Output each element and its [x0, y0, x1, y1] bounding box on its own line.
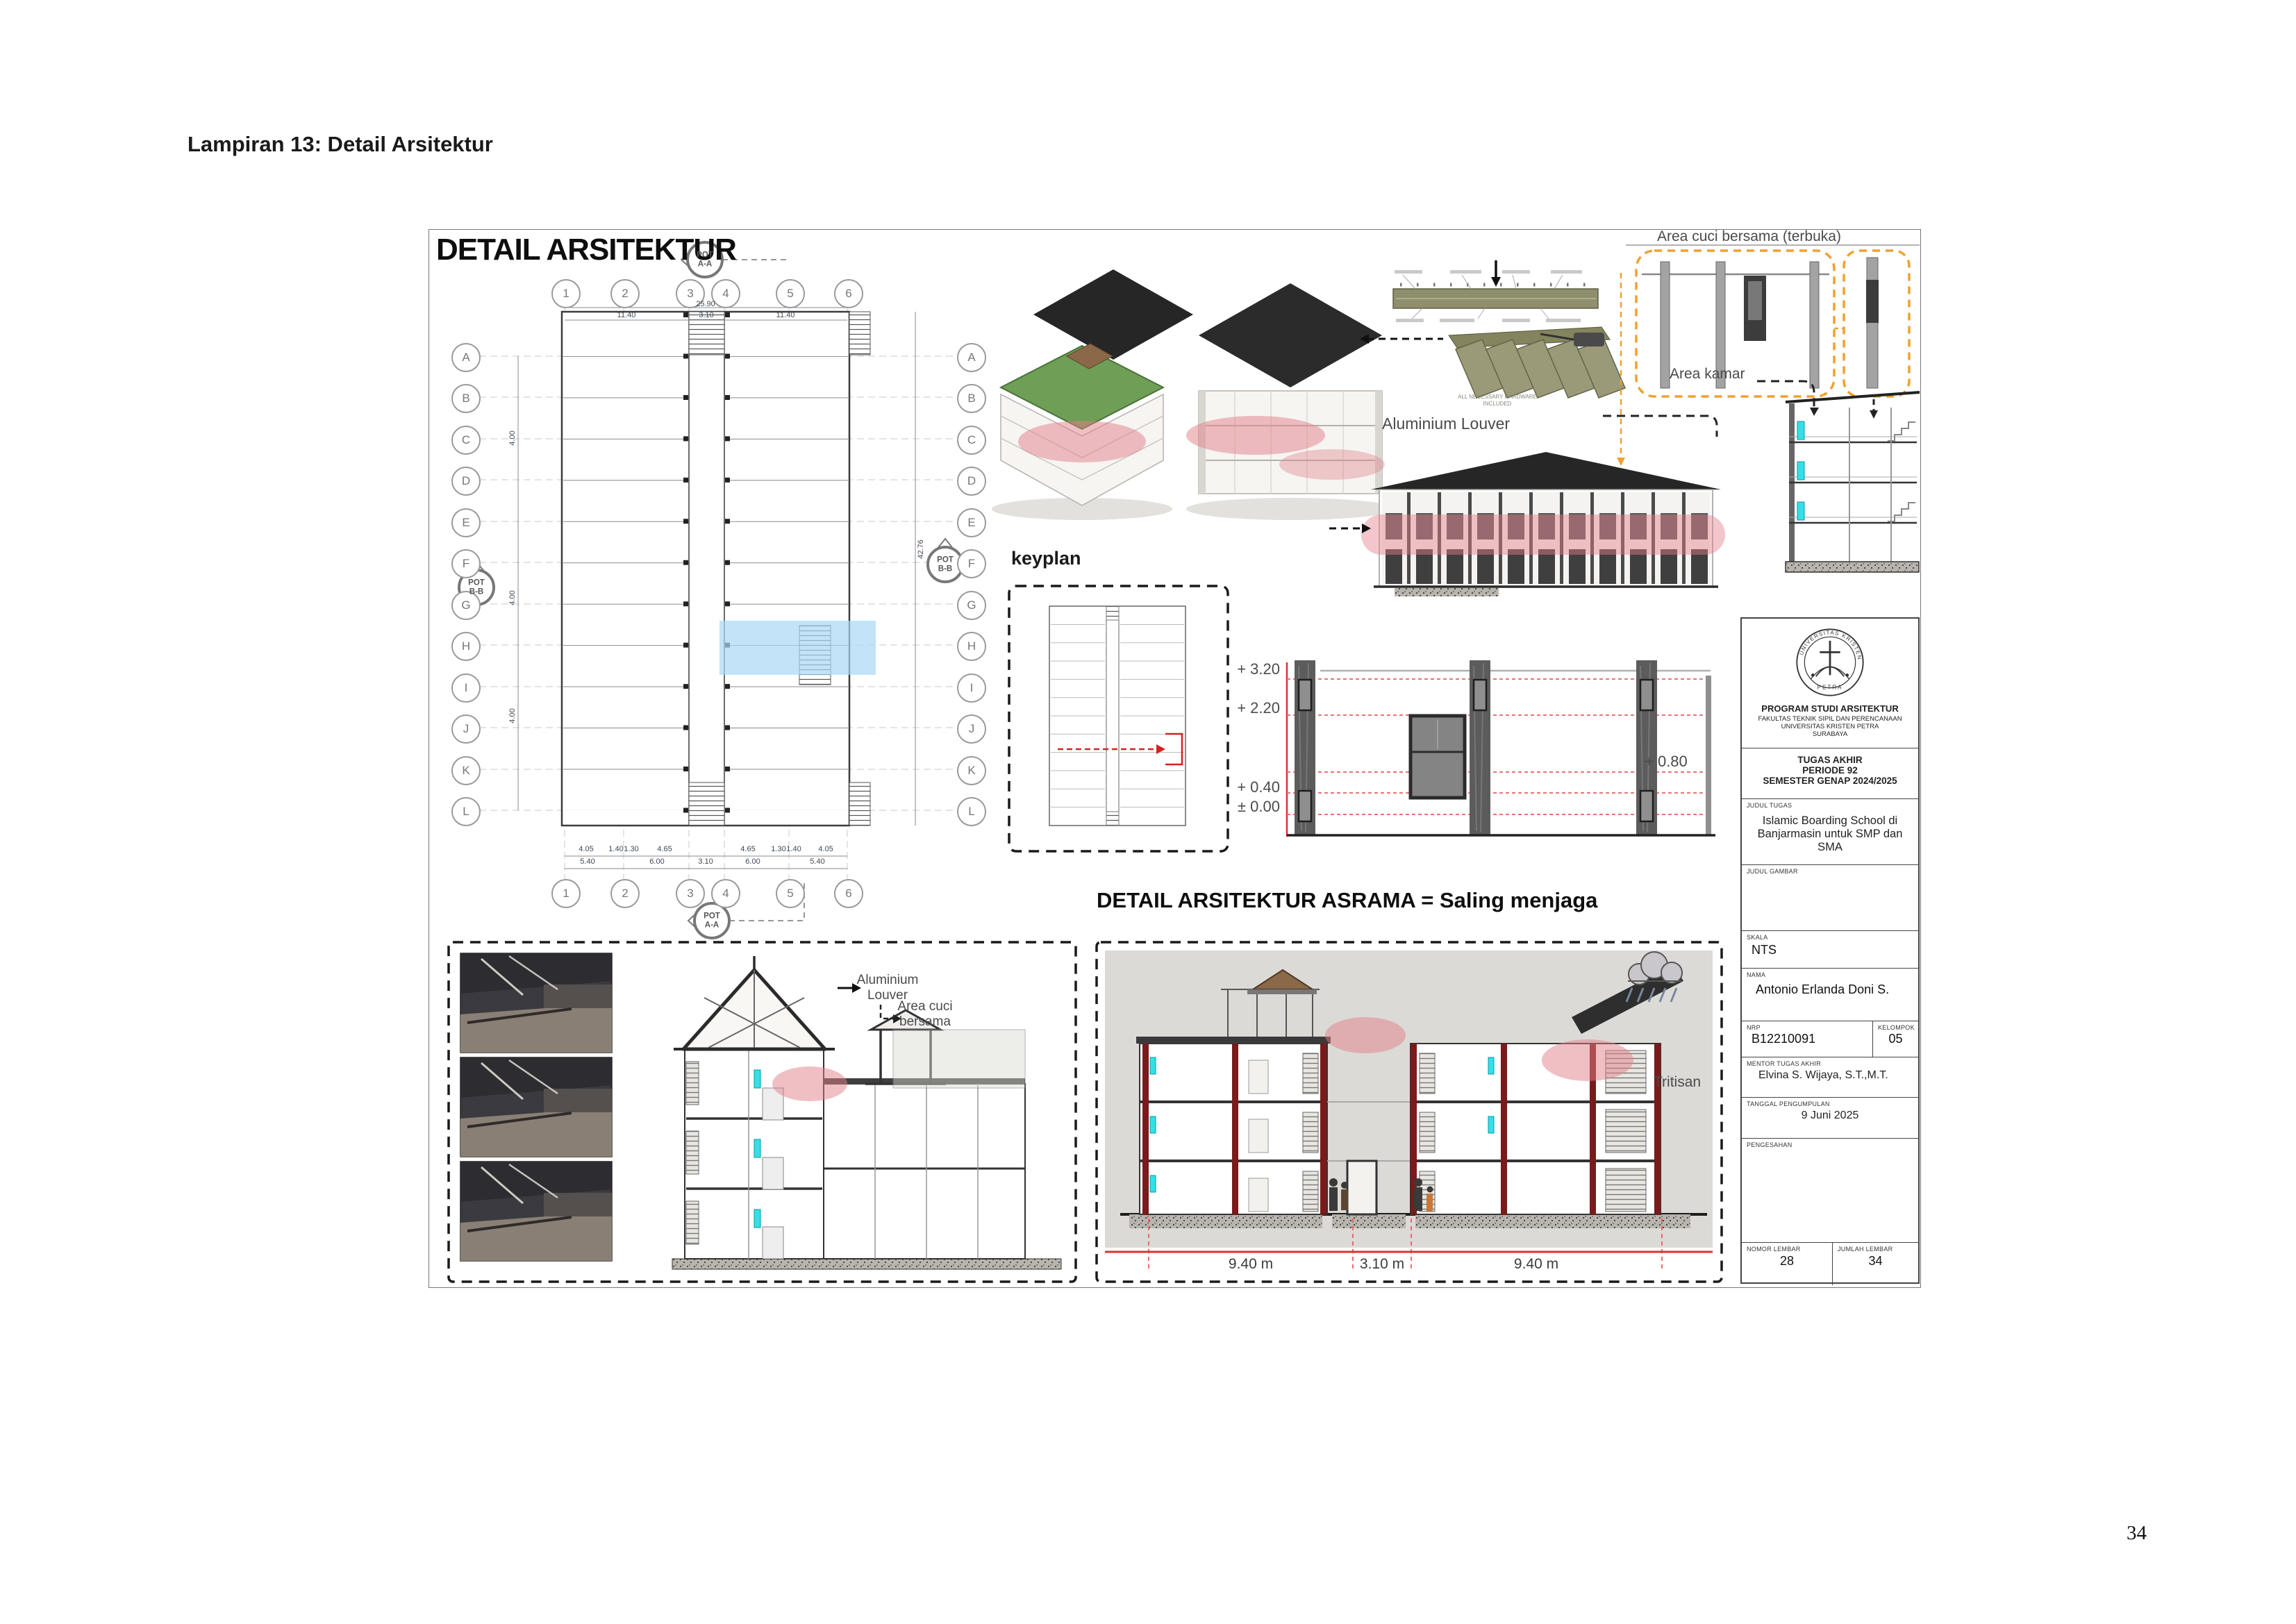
pink-highlight: [1361, 514, 1725, 555]
pink-highlight: [772, 1066, 847, 1101]
grid-bubble: A: [451, 343, 481, 372]
tanggal-value: 9 Juni 2025: [1742, 1107, 1918, 1122]
skala-label: SKALA: [1742, 931, 1918, 941]
dimension-label: 4.65: [740, 845, 755, 853]
judul-tugas-label: JUDUL TUGAS: [1742, 799, 1918, 809]
title-block-pengesahan: PENGESAHAN: [1742, 1139, 1918, 1243]
section-marker-label: POTA-A: [691, 912, 733, 929]
document-page: Lampiran 13: Detail Arsitektur: [0, 0, 2296, 1624]
floor-plan-drawing: [479, 308, 956, 879]
dimension-label: 4.05: [579, 845, 593, 853]
asrama-section: [1097, 942, 1722, 1282]
dimension-label: 4.00: [508, 590, 517, 605]
tugas-akhir: TUGAS AKHIR: [1742, 755, 1918, 765]
title-block-project: TUGAS AKHIR PERIODE 92 SEMESTER GENAP 20…: [1742, 748, 1918, 799]
dimension-label: 1.40: [786, 845, 801, 853]
dimension-label: 11.40: [617, 311, 636, 319]
level-label: + 0.80: [1645, 753, 1688, 771]
title-block-judul-tugas: JUDUL TUGAS Islamic Boarding School di B…: [1742, 799, 1918, 865]
level-label: ± 0.00: [1238, 798, 1280, 816]
grid-bubble: 1: [551, 879, 581, 908]
grid-bubble: H: [957, 632, 986, 661]
drawing-sheet: DETAIL ARSITEKTUR 123456 123456 ABCDEFGH…: [429, 229, 1921, 1288]
dimension-label: 6.00: [745, 857, 760, 866]
asrama-section-title: DETAIL ARSITEKTUR ASRAMA = Saling menjag…: [1097, 888, 1597, 913]
title-block-nama: NAMA Antonio Erlanda Doni S.: [1742, 969, 1918, 1021]
seal-text-bottom: PETRA: [1817, 685, 1843, 691]
dimension-label: 9.40 m: [1229, 1256, 1273, 1273]
grid-bubble: 2: [610, 879, 640, 908]
area-cuci-terbuka-label: Area cuci bersama (terbuka): [1657, 228, 1841, 245]
grid-bubble: L: [451, 797, 481, 826]
grid-bubble: L: [957, 797, 986, 826]
level-label: + 2.20: [1237, 699, 1280, 717]
nomor-lembar-value: 28: [1742, 1253, 1832, 1269]
dimension-label: 4.00: [508, 708, 517, 723]
semester: SEMESTER GENAP 2024/2025: [1742, 776, 1918, 786]
level-elevation: [1287, 660, 1715, 837]
louver-caption: ALL NECESSARY HARDWARE INCLUDED: [1456, 394, 1539, 407]
right-building-section: [1786, 392, 1920, 572]
grid-bubble: G: [957, 591, 986, 620]
dimension-label: 3.10 m: [1360, 1256, 1404, 1273]
grid-bubble: K: [957, 756, 986, 785]
wash-area-fragments: [1603, 245, 1920, 466]
skala-value: NTS: [1742, 941, 1918, 957]
grid-bubble: B: [957, 384, 986, 413]
pink-highlight: [1325, 1017, 1406, 1053]
jumlah-lembar-value: 34: [1833, 1253, 1918, 1269]
dimension-label: 4.05: [818, 845, 833, 853]
pink-highlight: [1279, 449, 1385, 480]
dimension-label: 1.30: [624, 845, 638, 853]
nomor-lembar-label: NOMOR LEMBAR: [1742, 1243, 1832, 1253]
area-kamar-label: Area kamar: [1670, 366, 1745, 383]
elevation-levels: + 3.20+ 2.20+ 0.40± 0.00: [1151, 230, 1280, 855]
dimension-label: 4.00: [508, 430, 517, 445]
nrp-value: B12210091: [1742, 1031, 1872, 1046]
tritisan-label: Tritisan: [1654, 1074, 1701, 1091]
dimension-label: 5.40: [580, 857, 594, 866]
grid-bubble: H: [451, 632, 481, 661]
dimension-label: 9.40 m: [1514, 1256, 1558, 1273]
grid-bubble: 6: [834, 279, 863, 308]
aluminium-louver-label: Aluminium Louver: [1382, 415, 1510, 433]
grid-bubble: E: [451, 508, 481, 537]
level-label: + 0.40: [1237, 778, 1280, 796]
title-block-tanggal: TANGGAL PENGUMPULAN 9 Juni 2025: [1742, 1098, 1918, 1139]
program-name: PROGRAM STUDI ARSITEKTUR: [1742, 703, 1918, 714]
pink-highlight: [1018, 421, 1146, 462]
plan-highlight-blue: [719, 621, 876, 675]
mentor-value: Elvina S. Wijaya, S.T.,M.T.: [1742, 1067, 1918, 1082]
grid-bubble: D: [957, 467, 986, 496]
grid-bubble: 6: [834, 879, 863, 908]
dimension-label: 3.10: [698, 857, 713, 866]
grid-bubble: 4: [711, 279, 740, 308]
dimension-label: 4.65: [657, 845, 672, 853]
dimension-label: 3.10: [699, 311, 713, 319]
area-cuci-bottom-label: Area cuci bersama: [885, 999, 965, 1030]
grid-bubble: A: [957, 343, 986, 372]
grid-bubble: I: [451, 673, 481, 703]
bottom-left-detail: [449, 942, 1076, 1282]
section-marker-label: POTB-B: [924, 555, 966, 573]
front-elevation: [1329, 452, 1725, 596]
section-marker-label: POTB-B: [456, 578, 497, 596]
grid-bubble: B: [451, 384, 481, 413]
grid-bubble: K: [451, 756, 481, 785]
dimension-label: 1.30: [771, 845, 785, 853]
title-block-judul-gambar: JUDUL GAMBAR: [1742, 865, 1918, 931]
interior-photos: [460, 953, 612, 1261]
dimension-label: 6.00: [649, 857, 664, 866]
grid-bubble: 2: [610, 279, 640, 308]
nama-value: Antonio Erlanda Doni S.: [1742, 978, 1918, 997]
nama-label: NAMA: [1742, 969, 1918, 978]
university-name: UNIVERSITAS KRISTEN PETRA: [1742, 723, 1918, 730]
grid-bubble: J: [957, 714, 986, 744]
kelompok-value: 05: [1873, 1031, 1918, 1046]
grid-bubble: C: [957, 426, 986, 455]
city-name: SURABAYA: [1742, 730, 1918, 738]
jumlah-lembar-label: JUMLAH LEMBAR: [1833, 1243, 1918, 1253]
title-block-lembar: NOMOR LEMBAR 28 JUMLAH LEMBAR 34: [1742, 1243, 1918, 1285]
grid-bubble: D: [451, 467, 481, 496]
grid-bubble: 1: [551, 279, 581, 308]
grid-bubble: F: [451, 549, 481, 578]
plan-grid-rows-right: ABCDEFGHIJKL: [957, 343, 985, 829]
keyplan-label: keyplan: [1011, 548, 1081, 569]
grid-bubble: 4: [711, 879, 740, 908]
title-block-nrp-kelompok: NRP B12210091 KELOMPOK 05: [1742, 1021, 1918, 1057]
grid-bubble: 5: [776, 879, 805, 908]
title-block: UNIVERSITAS KRISTEN PETRA PROGRAM STUDI …: [1740, 617, 1920, 1284]
mentor-label: MENTOR TUGAS AKHIR: [1742, 1057, 1918, 1067]
grid-bubble: 3: [676, 879, 705, 908]
document-heading: Lampiran 13: Detail Arsitektur: [188, 132, 493, 157]
faculty-name: FAKULTAS TEKNIK SIPIL DAN PERENCANAAN: [1742, 715, 1918, 723]
judul-tugas-value: Islamic Boarding School di Banjarmasin u…: [1742, 809, 1918, 854]
title-block-institution: UNIVERSITAS KRISTEN PETRA PROGRAM STUDI …: [1742, 619, 1918, 748]
tanggal-label: TANGGAL PENGUMPULAN: [1742, 1098, 1918, 1107]
periode: PERIODE 92: [1742, 765, 1918, 776]
judul-gambar-label: JUDUL GAMBAR: [1742, 865, 1918, 875]
grid-bubble: I: [957, 673, 986, 703]
page-number: 34: [2127, 1522, 2147, 1545]
section-marker-label: POTA-A: [684, 251, 726, 268]
grid-bubble: E: [957, 508, 986, 537]
dimension-label: 11.40: [776, 311, 795, 319]
dimension-label: 5.40: [810, 857, 824, 866]
grid-bubble: C: [451, 426, 481, 455]
pengesahan-label: PENGESAHAN: [1742, 1139, 1918, 1148]
title-block-mentor: MENTOR TUGAS AKHIR Elvina S. Wijaya, S.T…: [1742, 1057, 1918, 1098]
level-label: + 3.20: [1237, 660, 1280, 678]
grid-bubble: 5: [776, 279, 805, 308]
pink-highlight: [1542, 1039, 1633, 1081]
dimension-label: 1.40: [608, 845, 623, 853]
title-block-skala: SKALA NTS: [1742, 931, 1918, 969]
grid-bubble: J: [451, 714, 481, 744]
university-seal-icon: UNIVERSITAS KRISTEN PETRA: [1792, 624, 1868, 701]
plan-total-dimension: 25.90: [696, 300, 715, 308]
nrp-label: NRP: [1742, 1021, 1872, 1031]
kelompok-label: KELOMPOK: [1873, 1021, 1918, 1031]
